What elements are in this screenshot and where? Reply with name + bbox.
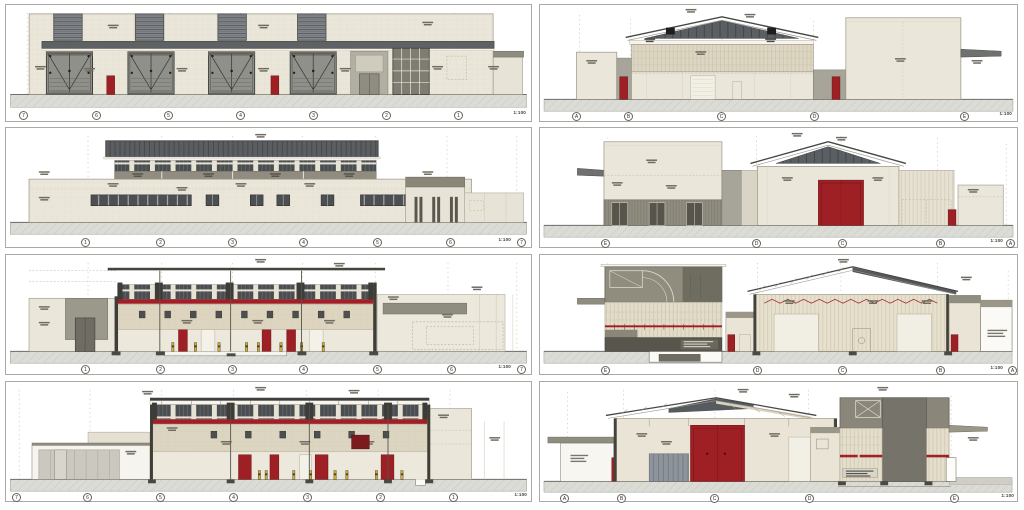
grid-bubble: D (810, 112, 819, 121)
link-block (726, 312, 756, 351)
right-annex (493, 56, 522, 94)
dark-red-equipment (352, 435, 370, 449)
wall-cut (753, 294, 756, 351)
elevation-rear-drawing (6, 128, 531, 247)
canopy-band (42, 41, 494, 48)
grid-bubble: C (838, 239, 847, 248)
ground-hatch (544, 481, 1012, 492)
grid-bubble: 1 (81, 238, 90, 247)
tall-building (604, 142, 722, 226)
red-door (381, 455, 394, 480)
grid-bubble: 5 (373, 238, 382, 247)
section-2-drawing (540, 255, 1017, 374)
doorway-outline (789, 437, 811, 481)
clerestory-band (115, 160, 377, 171)
grid-bubble: 4 (299, 238, 308, 247)
grid-bubble: 7 (517, 238, 526, 247)
raised-ground (949, 477, 1012, 484)
red-band (118, 299, 374, 304)
panel-caption: 1:100 (943, 238, 1003, 243)
roof-slab (106, 141, 378, 158)
grid-bubble: 7 (19, 111, 28, 120)
grid-bubble: 4 (236, 111, 245, 120)
panel-section-3: 7 6 5 4 3 2 1 1:100 (5, 381, 532, 502)
service-block (406, 177, 465, 222)
strip-window (360, 195, 407, 206)
grid-bubble: 6 (92, 111, 101, 120)
entry-bay (351, 51, 388, 94)
grid-bubble: 2 (156, 238, 165, 247)
tower-complex (840, 398, 988, 482)
red-door (951, 335, 958, 352)
opening-outline (774, 314, 818, 351)
wall-cut (373, 283, 376, 352)
lattice-section (899, 170, 954, 225)
grid-bubble: 5 (164, 111, 173, 120)
right-annex (810, 427, 840, 481)
grid-bubble: 3 (228, 238, 237, 247)
left-block (601, 264, 726, 351)
red-door (271, 76, 279, 95)
ground-hatch (10, 222, 526, 234)
grid-bubble: 5 (156, 493, 165, 502)
gable-hall (750, 142, 905, 226)
panel-elevation-side-a: A B C D E 1:100 (539, 4, 1018, 122)
panel-caption: 1:100 (451, 237, 511, 242)
red-door (239, 455, 252, 480)
grid-bubble: 2 (376, 493, 385, 502)
grid-bubble: 1 (449, 493, 458, 502)
panel-section-2: E D C B A 1:100 (539, 254, 1018, 375)
doorway-outline (201, 330, 215, 352)
tall-building (846, 18, 961, 100)
grid-bubble: 5 (373, 365, 382, 374)
red-door (287, 330, 296, 352)
panel-section-4: A B C D E 1:100 (539, 381, 1018, 502)
wall-cut (150, 405, 153, 480)
end-building-section (981, 300, 1012, 351)
grid-bubble: 1 (454, 111, 463, 120)
section-4-drawing (540, 382, 1017, 501)
right-zone (377, 286, 513, 351)
grid-bubble: A (1008, 366, 1017, 375)
right-zone (430, 409, 504, 480)
red-line (605, 325, 722, 327)
grid-bubble: 7 (12, 493, 21, 502)
grid-bubble: D (752, 239, 761, 248)
red-door (107, 76, 115, 95)
left-annex (548, 437, 614, 481)
elevation-side-a-drawing (540, 5, 1017, 121)
panel-section-1: 1 2 3 4 5 6 7 1:100 (5, 254, 532, 375)
drawing-sheet: 7 6 5 4 3 2 1 1:100 (0, 0, 1024, 510)
side-canopy (949, 425, 987, 432)
red-door (270, 455, 279, 480)
red-door (262, 330, 271, 352)
pit (416, 479, 426, 485)
panel-caption: 1:100 (943, 365, 1003, 370)
grid-bubble: B (624, 112, 633, 121)
grid-bubble: 7 (517, 365, 526, 374)
small-wing (576, 52, 616, 99)
grid-bubble: 2 (156, 365, 165, 374)
red-door (728, 335, 735, 352)
lockers (39, 450, 120, 480)
elevation-side-b-drawing (540, 128, 1017, 247)
grid-bubble: C (838, 366, 847, 375)
elevation-main-drawing (6, 5, 531, 121)
panel-elevation-side-b: E D C B A 1:100 (539, 127, 1018, 248)
roof-vent (666, 28, 675, 35)
side-canopy (577, 168, 604, 176)
end-building (958, 185, 1003, 225)
grid-bubble: 3 (303, 493, 312, 502)
side-canopy (577, 298, 605, 304)
vent-row (139, 311, 349, 318)
panel-caption: 1:100 (451, 364, 511, 369)
core-wall (882, 398, 926, 482)
section-1-drawing (6, 255, 531, 374)
red-door (620, 77, 628, 100)
roof-chord (150, 398, 429, 401)
plank-panel (649, 454, 688, 482)
gable-hall-section (606, 398, 837, 482)
ground-hatch (544, 225, 1013, 237)
grid-bubble: B (617, 494, 626, 503)
side-canopy (961, 49, 1001, 57)
grid-bubble: 4 (229, 493, 238, 502)
gable-hall (626, 17, 819, 100)
panel-caption: 1:100 (467, 492, 527, 497)
double-doors (612, 203, 702, 226)
grid-bubble: A (1006, 239, 1015, 248)
far-right-structure (465, 193, 524, 223)
grid-bubble: D (805, 494, 814, 503)
link-wall (813, 70, 845, 99)
lattice-gate (393, 48, 429, 94)
left-annex (32, 432, 150, 479)
white-post (946, 458, 956, 482)
wall-cut (614, 418, 617, 481)
red-door (315, 455, 328, 480)
grid-bubble: E (601, 366, 610, 375)
grid-bubble: A (572, 112, 581, 121)
strip-window (91, 195, 191, 206)
roof-vent (767, 28, 776, 35)
grid-bubble: A (560, 494, 569, 503)
red-door (948, 210, 956, 226)
grid-bubble: C (710, 494, 719, 503)
floor-recess (165, 351, 287, 355)
grid-bubble: C (717, 112, 726, 121)
roof-chord (108, 268, 385, 271)
wall-cut (115, 296, 118, 351)
grid-bubble: E (601, 239, 610, 248)
ground-hatch (10, 94, 526, 107)
grid-bubble: 2 (382, 111, 391, 120)
red-band (152, 419, 427, 424)
panel-caption: 1:100 (466, 110, 526, 115)
panel-caption: 1:100 (954, 493, 1014, 498)
grid-bubble: 4 (299, 365, 308, 374)
gable-hall-section (748, 267, 958, 352)
ground-hatch (10, 479, 526, 491)
left-zone (29, 271, 118, 352)
fascia-band (115, 171, 377, 180)
wall-cut (946, 294, 949, 351)
ground-hatch (544, 99, 1013, 111)
red-door (832, 77, 840, 100)
roof-dark-panel (853, 268, 956, 295)
panel-elevation-rear: 1 2 3 4 5 6 7 1:100 (5, 127, 532, 248)
doorway-outline (309, 330, 323, 352)
grid-bubble: 6 (83, 493, 92, 502)
grid-bubble: 1 (81, 365, 90, 374)
grid-bubble: D (753, 366, 762, 375)
red-door (179, 330, 188, 352)
grid-bubble: 3 (228, 365, 237, 374)
opening-outline (897, 314, 931, 351)
grid-bubble: 3 (309, 111, 318, 120)
lower-wall (632, 72, 814, 100)
ground-hatch (544, 351, 1012, 363)
section-3-drawing (6, 382, 531, 501)
wall-cut (427, 405, 430, 480)
panel-elevation-main: 7 6 5 4 3 2 1 1:100 (5, 4, 532, 122)
panel-caption: 1:100 (952, 111, 1012, 116)
